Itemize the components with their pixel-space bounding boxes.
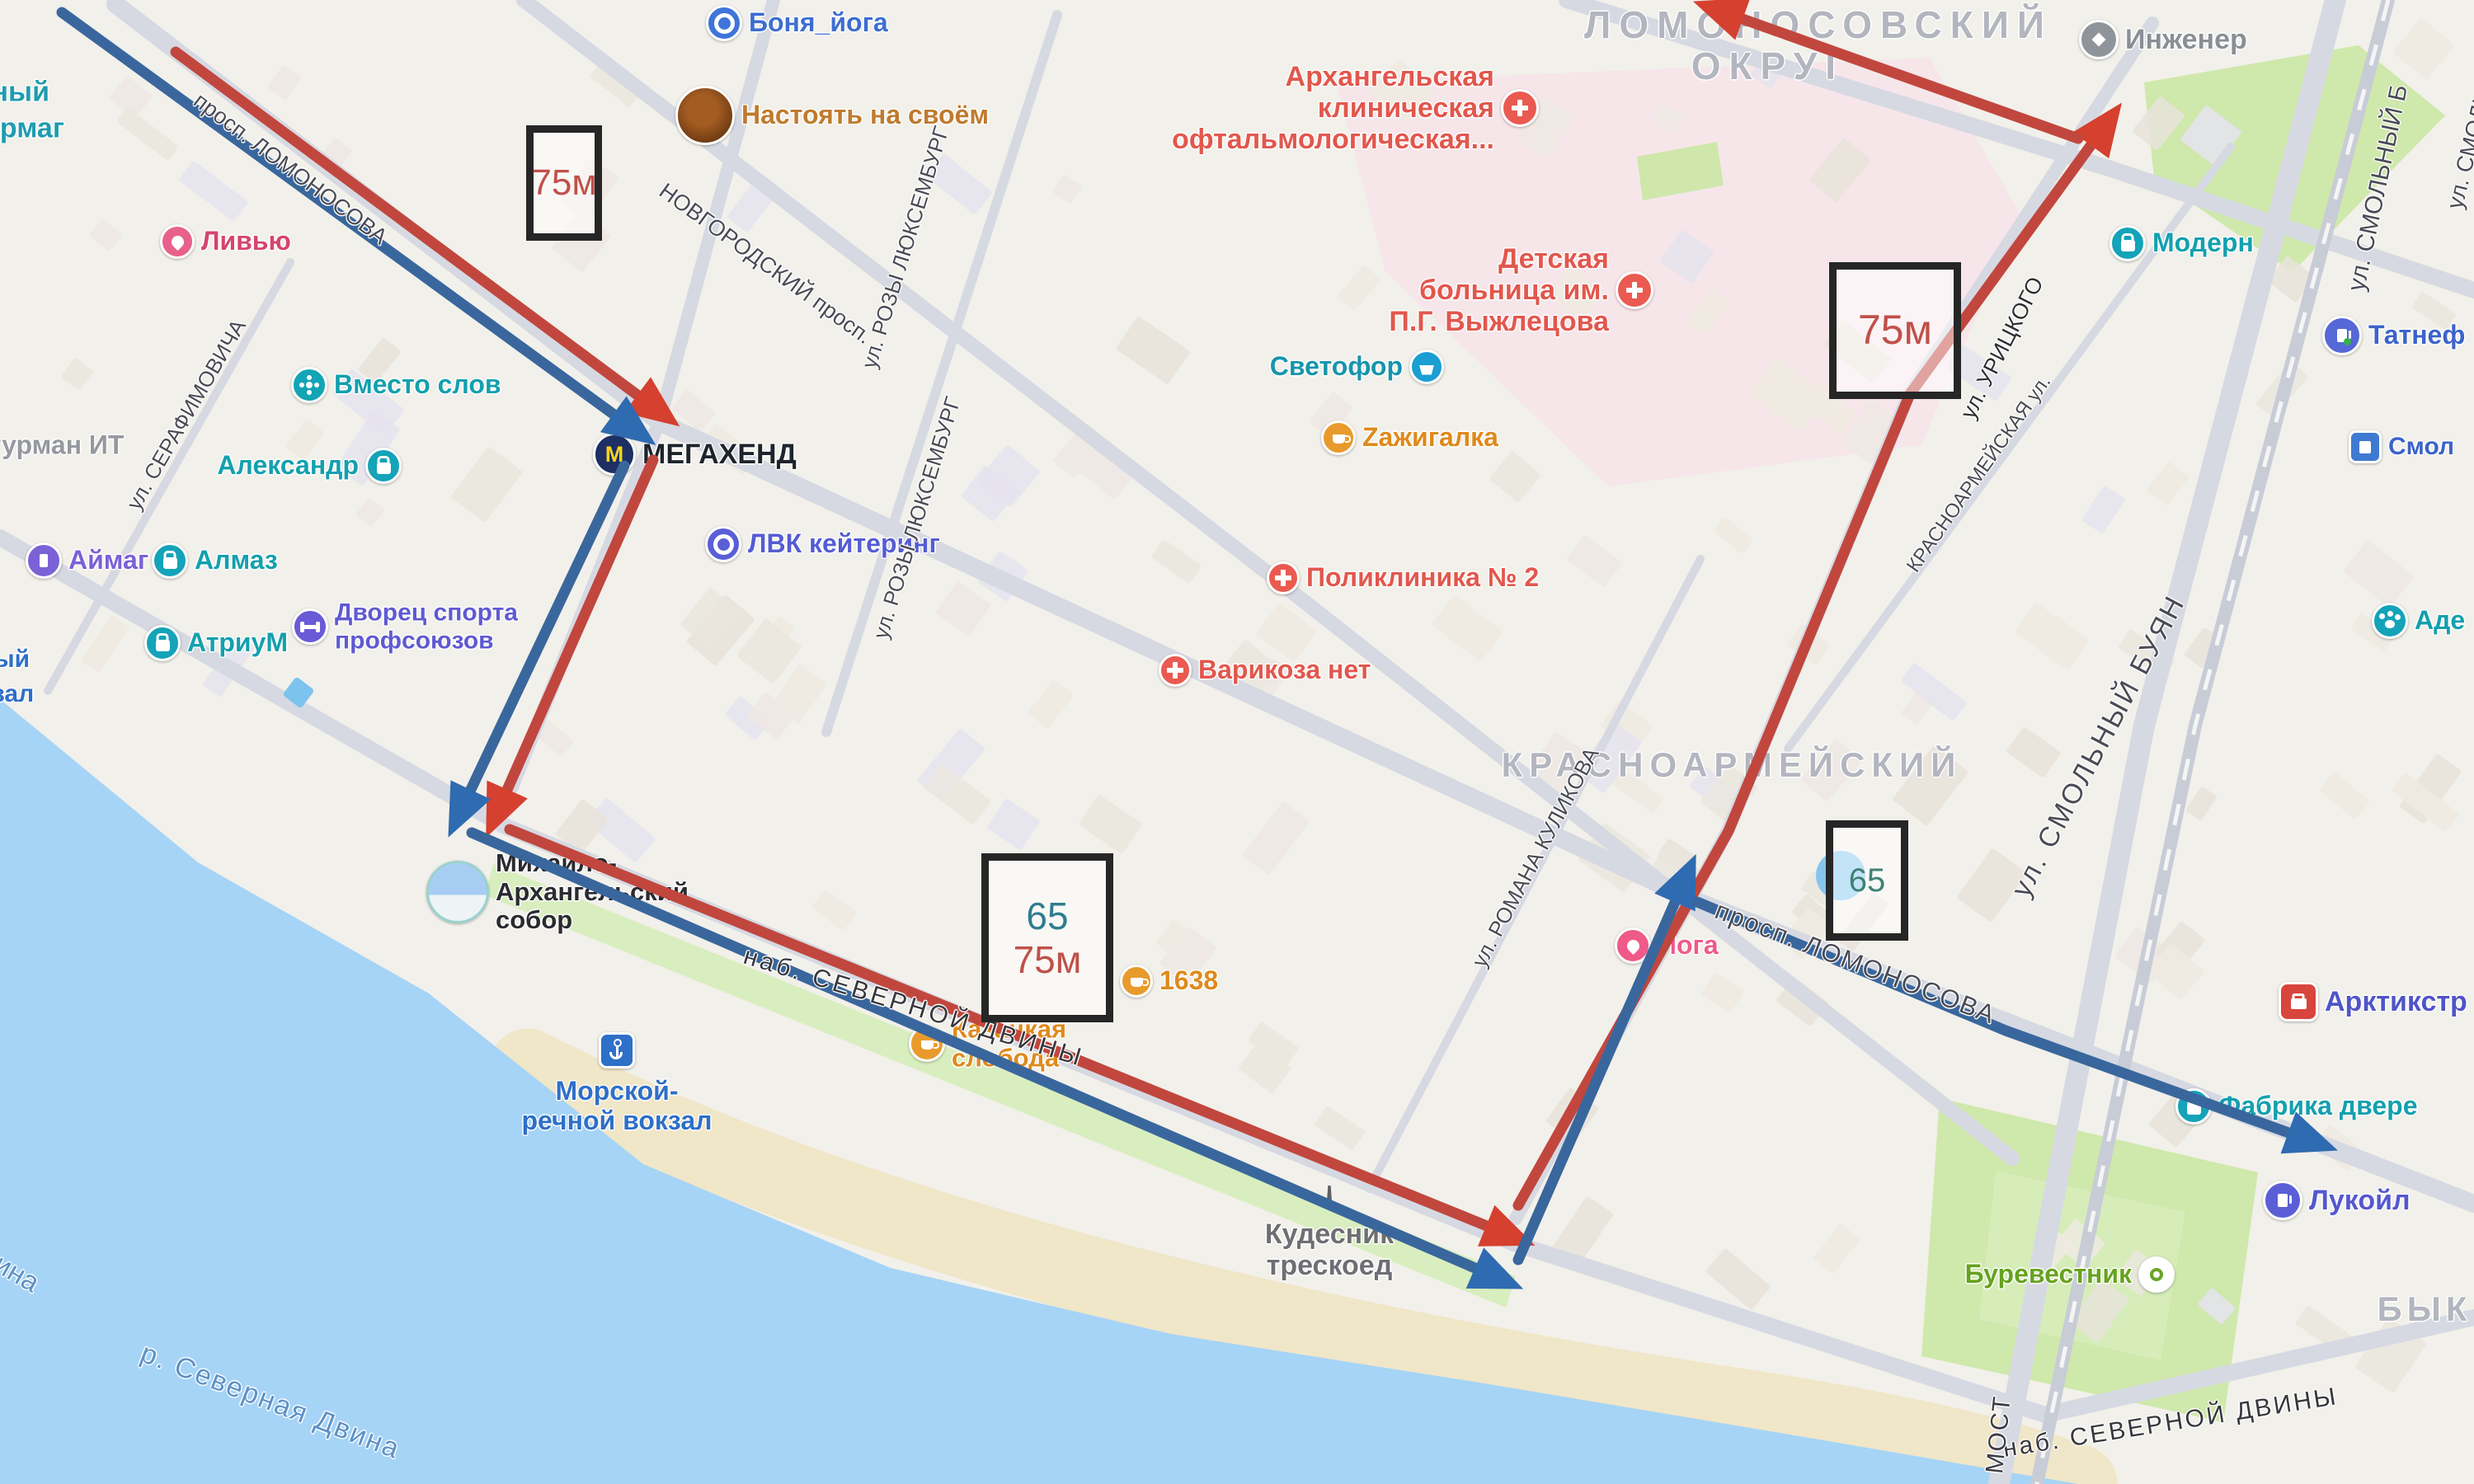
map-canvas[interactable]: ЛОМОНОСОВСКИЙОКРУГКРАСНОАРМЕЙСКИЙБЫКр. С…	[0, 0, 2474, 1484]
box-75m-left: 75м	[526, 125, 602, 241]
box-65-75m: 6575м	[981, 853, 1113, 1022]
measure-boxes-layer: 75м75м6575м65	[0, 0, 2474, 1484]
box-65: 65	[1826, 820, 1908, 941]
box-75m-right: 75м	[1829, 262, 1961, 399]
